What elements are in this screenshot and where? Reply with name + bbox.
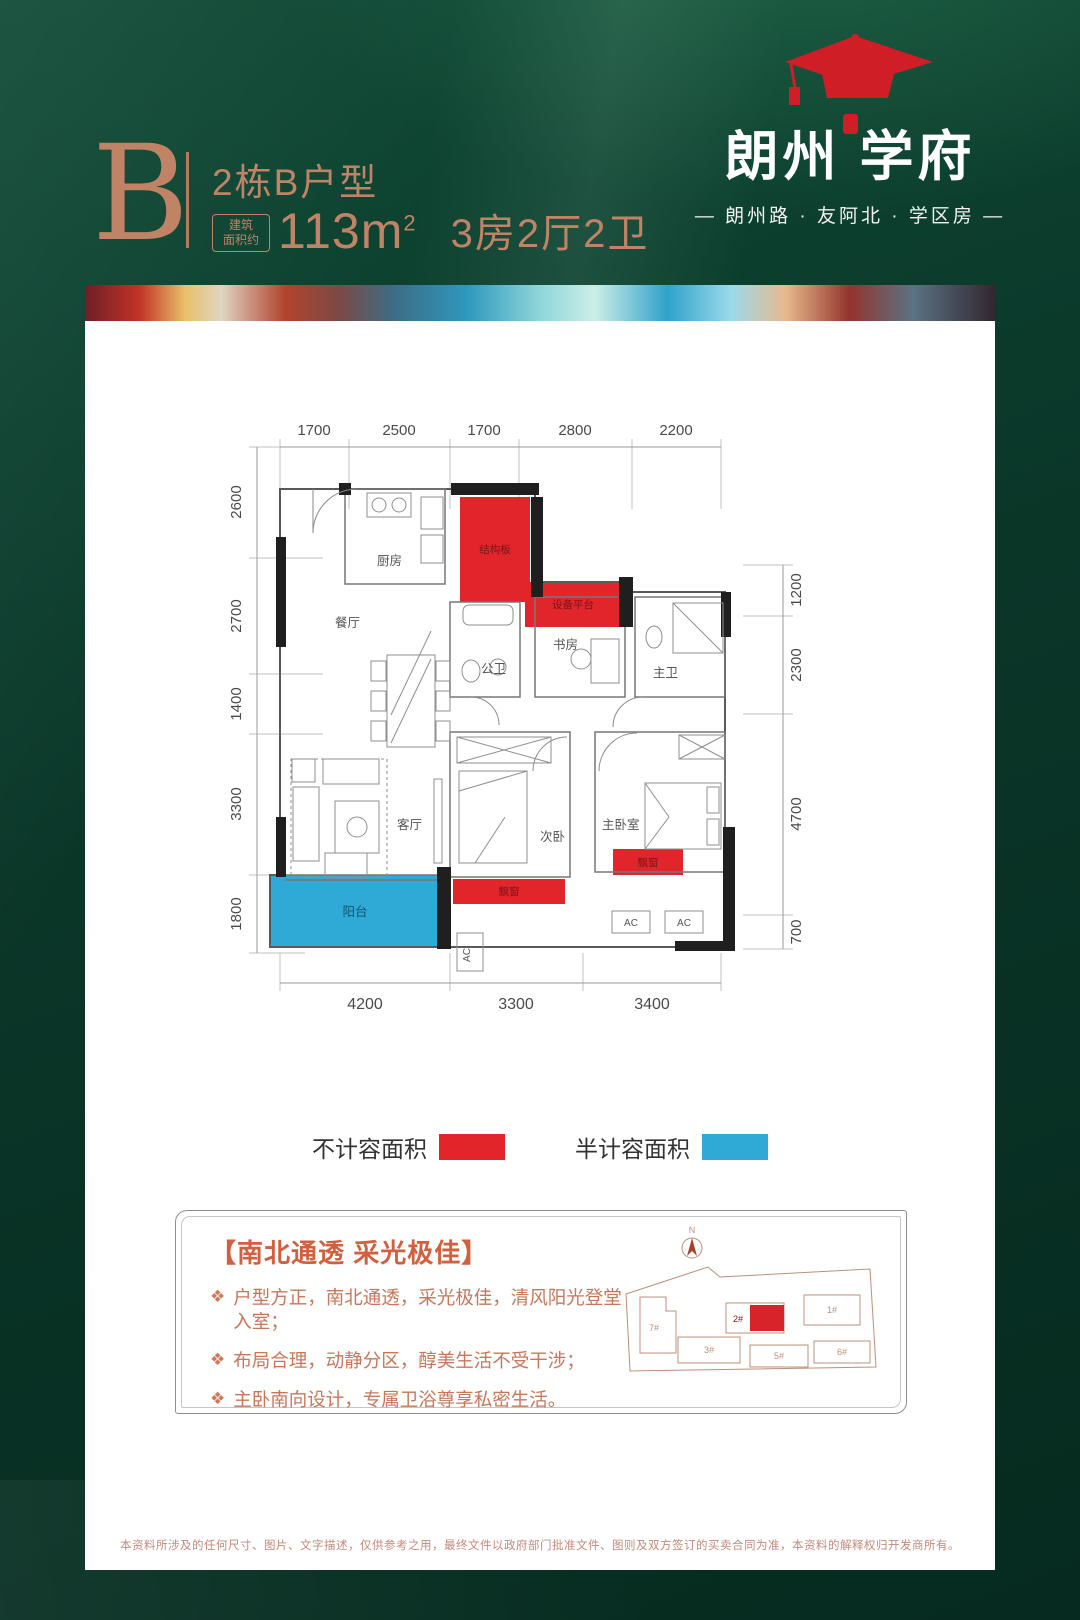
room-label-bedroom2: 次卧 xyxy=(540,830,565,844)
dim-right-3: 4700 xyxy=(788,797,805,830)
feature-text-1: 户型方正，南北通透，采光极佳，清风阳光登堂入室； xyxy=(233,1286,630,1334)
room-label-dining: 餐厅 xyxy=(335,615,360,630)
area-prefix-line2: 面积约 xyxy=(215,233,267,248)
area-prefix-badge: 建筑 面积约 xyxy=(212,214,270,252)
red-seal-icon xyxy=(843,114,858,134)
site-map: N 7# 3# 2# 1# 5# 6# xyxy=(608,1219,890,1397)
feature-text-2: 布局合理，动静分区，醇美生活不受干涉； xyxy=(233,1349,585,1373)
dim-right-4: 700 xyxy=(788,919,805,944)
abstract-paint-strip xyxy=(85,285,995,321)
label-ac-2: AC xyxy=(677,918,691,929)
label-ac-3: AC xyxy=(462,948,473,962)
room-label-master-bedroom: 主卧室 xyxy=(602,817,640,832)
area-row: 建筑 面积约 113m2 3房2厅2卫 xyxy=(212,198,649,256)
feature-item: ❖ 户型方正，南北通透，采光极佳，清风阳光登堂入室； xyxy=(210,1286,630,1334)
brand-name: 朗州学府 xyxy=(690,112,1010,191)
dim-top-3: 1700 xyxy=(467,422,500,439)
north-needle-icon xyxy=(687,1238,697,1256)
dim-left-1: 2600 xyxy=(228,485,245,518)
diamond-bullet-icon: ❖ xyxy=(210,1286,225,1309)
room-label-public-bath: 公卫 xyxy=(481,662,506,676)
dim-left-5: 1800 xyxy=(228,897,245,930)
dim-top-4: 2800 xyxy=(558,422,591,439)
feature-text-3: 主卧南向设计，专属卫浴尊享私密生活。 xyxy=(233,1388,566,1412)
dim-left-2: 2700 xyxy=(228,599,245,632)
legend-label-non-countable: 不计容面积 xyxy=(312,1130,427,1164)
building-label-3: 3# xyxy=(704,1345,714,1355)
diamond-bullet-icon: ❖ xyxy=(210,1349,225,1372)
content-card: 1700 2500 1700 2800 2200 2600 2700 1400 … xyxy=(85,285,995,1570)
rooms-count: 3房2厅2卫 xyxy=(451,212,650,256)
area-number: 113m xyxy=(278,203,403,259)
dim-top-2: 2500 xyxy=(382,422,415,439)
dim-top-5: 2200 xyxy=(659,422,692,439)
building-label-1: 1# xyxy=(827,1305,837,1315)
dim-top-1: 1700 xyxy=(297,422,330,439)
legend-item-non-countable: 不计容面积 xyxy=(312,1130,505,1164)
area-prefix-line1: 建筑 xyxy=(215,218,267,233)
feature-content: 【南北通透 采光极佳】 ❖ 户型方正，南北通透，采光极佳，清风阳光登堂入室； ❖… xyxy=(210,1233,630,1427)
diamond-bullet-icon: ❖ xyxy=(210,1388,225,1411)
building-label-6: 6# xyxy=(837,1347,847,1357)
area-value: 113m2 xyxy=(278,206,417,256)
label-bay-window-2: 飘窗 xyxy=(638,856,659,869)
legend: 不计容面积 半计容面积 xyxy=(85,1130,995,1164)
room-label-study: 书房 xyxy=(553,637,578,652)
feature-box: 【南北通透 采光极佳】 ❖ 户型方正，南北通透，采光极佳，清风阳光登堂入室； ❖… xyxy=(175,1210,907,1414)
label-structure-slab: 结构板 xyxy=(479,543,511,556)
dim-right-1: 1200 xyxy=(788,573,805,606)
label-bay-window-1: 飘窗 xyxy=(499,885,520,898)
unit-letter: B xyxy=(92,128,189,260)
north-label: N xyxy=(689,1225,696,1235)
floor-plan: 1700 2500 1700 2800 2200 2600 2700 1400 … xyxy=(195,397,885,1037)
legend-label-half-countable: 半计容面积 xyxy=(575,1130,690,1164)
legend-swatch-blue xyxy=(702,1134,768,1160)
brand-name-right: 学府 xyxy=(860,112,976,191)
dim-left-3: 1400 xyxy=(228,687,245,720)
area-superscript: 2 xyxy=(403,210,416,235)
header-divider xyxy=(186,152,189,248)
feature-item: ❖ 主卧南向设计，专属卫浴尊享私密生活。 xyxy=(210,1388,630,1412)
dim-bottom-3: 3400 xyxy=(634,996,670,1013)
brand-tagline: — 朗州路 · 友阿北 · 学区房 — xyxy=(690,201,1010,228)
room-label-kitchen: 厨房 xyxy=(377,553,402,568)
dim-right-2: 2300 xyxy=(788,648,805,681)
room-label-master-bath: 主卫 xyxy=(653,666,678,680)
building-label-5: 5# xyxy=(774,1351,784,1361)
disclaimer-text: 本资料所涉及的任何尺寸、图片、文字描述，仅供参考之用，最终文件以政府部门批准文件… xyxy=(85,1537,995,1553)
feature-item: ❖ 布局合理，动静分区，醇美生活不受干涉； xyxy=(210,1349,630,1373)
dim-bottom-2: 3300 xyxy=(498,996,534,1013)
feature-title: 【南北通透 采光极佳】 xyxy=(210,1233,630,1270)
dim-bottom-1: 4200 xyxy=(347,996,383,1013)
brand-logo: 朗州学府 — 朗州路 · 友阿北 · 学区房 — xyxy=(690,32,1010,228)
graduation-cap-icon xyxy=(755,32,945,110)
legend-item-half-countable: 半计容面积 xyxy=(575,1130,768,1164)
building-label-2: 2# xyxy=(733,1314,743,1324)
highlighted-building-2 xyxy=(750,1305,784,1331)
label-ac-1: AC xyxy=(624,918,638,929)
dim-left-4: 3300 xyxy=(228,787,245,820)
label-equipment-platform: 设备平台 xyxy=(552,598,594,611)
brand-name-left: 朗州 xyxy=(725,112,841,191)
room-label-balcony: 阳台 xyxy=(342,904,367,919)
room-label-living: 客厅 xyxy=(397,817,422,832)
building-label-7: 7# xyxy=(649,1323,659,1333)
legend-swatch-red xyxy=(439,1134,505,1160)
